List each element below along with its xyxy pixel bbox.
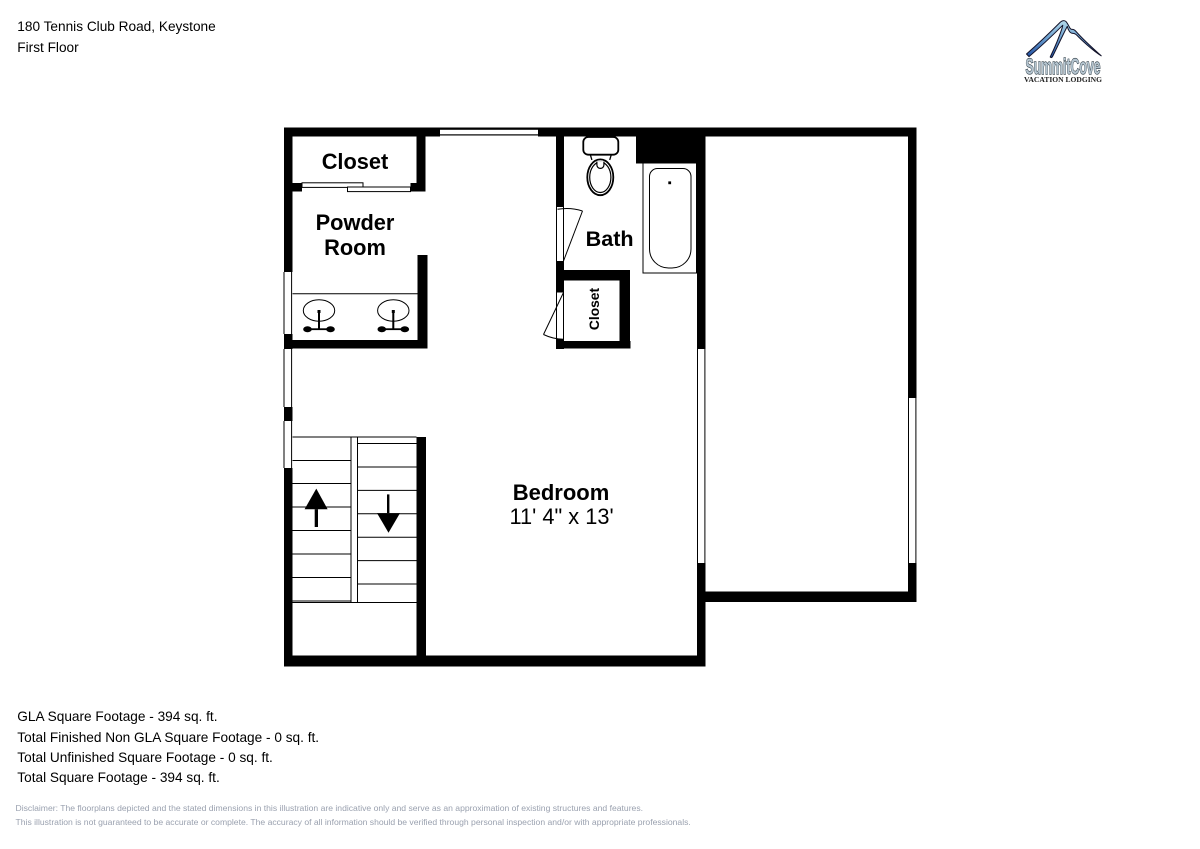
svg-text:VACATION LODGING: VACATION LODGING — [1024, 76, 1103, 84]
